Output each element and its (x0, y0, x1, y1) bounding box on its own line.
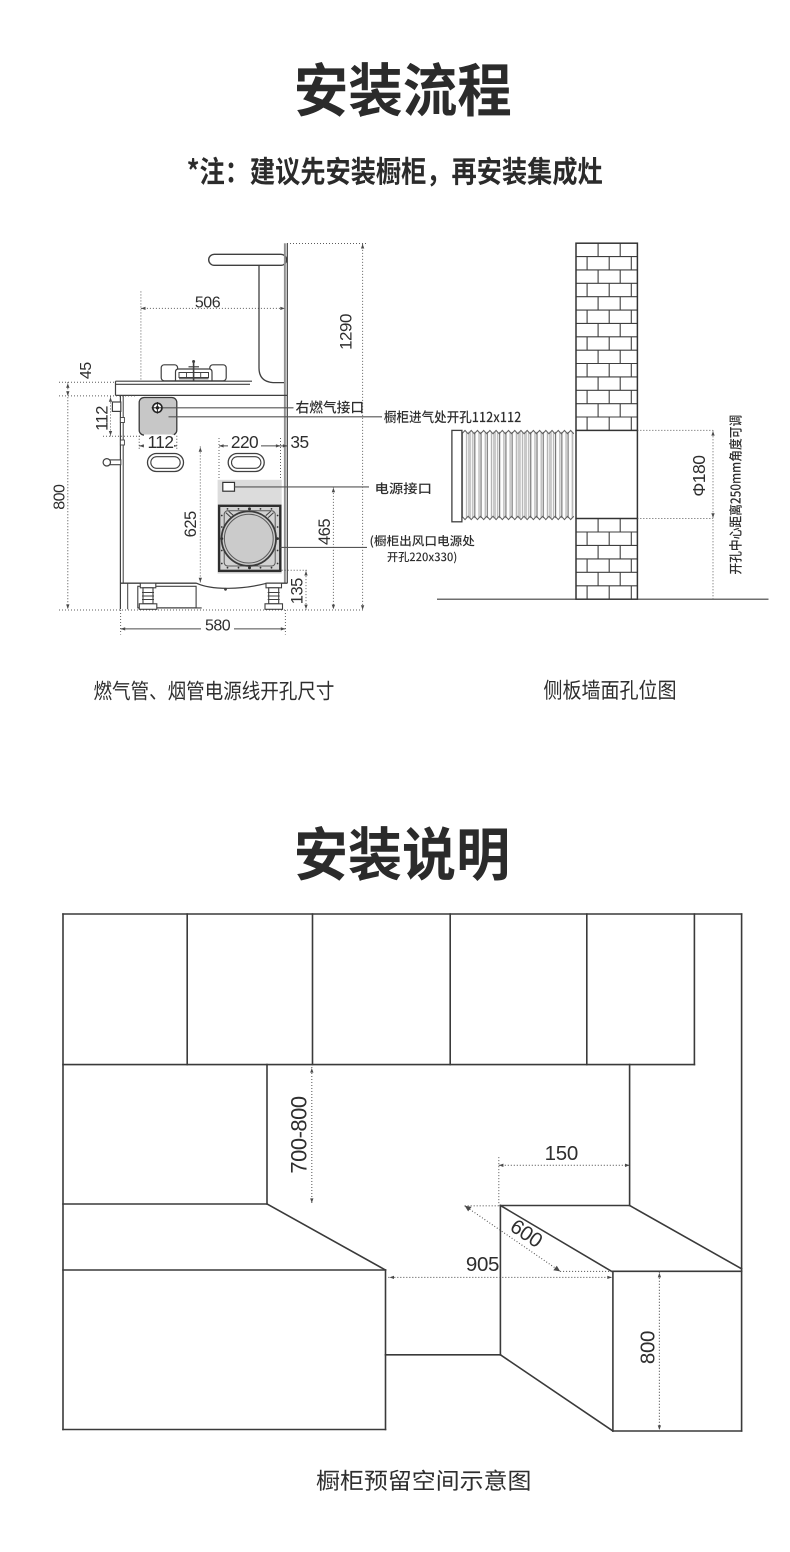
svg-text:506: 506 (195, 295, 221, 312)
svg-text:135: 135 (288, 578, 306, 604)
svg-text:700-800: 700-800 (287, 1096, 312, 1174)
svg-text:465: 465 (316, 519, 334, 545)
svg-text:112: 112 (94, 406, 112, 431)
svg-text:35: 35 (290, 432, 308, 452)
svg-text:905: 905 (466, 1253, 499, 1276)
svg-text:112: 112 (147, 432, 173, 452)
svg-text:800: 800 (637, 1331, 660, 1364)
svg-text:Φ180: Φ180 (689, 455, 709, 497)
svg-text:580: 580 (205, 618, 231, 635)
svg-text:600: 600 (506, 1215, 546, 1253)
svg-text:45: 45 (78, 362, 95, 379)
svg-text:220: 220 (231, 432, 258, 452)
svg-text:800: 800 (52, 484, 69, 510)
svg-text:150: 150 (545, 1142, 578, 1165)
svg-text:1290: 1290 (337, 314, 356, 350)
svg-text:625: 625 (182, 511, 200, 537)
